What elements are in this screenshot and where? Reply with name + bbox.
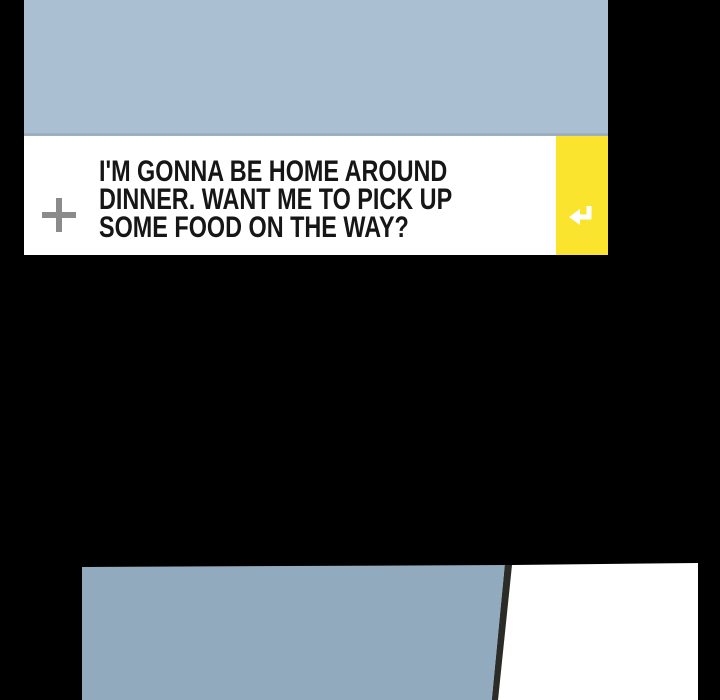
message-text: I'M GONNA BE HOME AROUND DINNER. WANT ME… (99, 158, 552, 242)
door-shape (498, 563, 698, 700)
panel-artwork-top (24, 0, 608, 136)
webtoon-page: I'M GONNA BE HOME AROUND DINNER. WANT ME… (0, 0, 720, 700)
return-arrow-head (569, 209, 580, 225)
message-line: SOME FOOD ON THE WAY? (99, 214, 452, 242)
plus-icon (41, 197, 77, 233)
send-button[interactable] (556, 136, 608, 255)
message-line: DINNER. WANT ME TO PICK UP (99, 186, 452, 214)
chat-input-bar: I'M GONNA BE HOME AROUND DINNER. WANT ME… (24, 136, 608, 255)
comic-panel-top: I'M GONNA BE HOME AROUND DINNER. WANT ME… (24, 0, 608, 255)
plus-icon-strokes (42, 198, 76, 232)
return-arrow-icon (567, 201, 597, 231)
comic-panel-bottom (82, 563, 698, 700)
message-line: I'M GONNA BE HOME AROUND (99, 158, 452, 186)
plus-button[interactable] (41, 197, 77, 233)
wall-shape (82, 565, 505, 700)
